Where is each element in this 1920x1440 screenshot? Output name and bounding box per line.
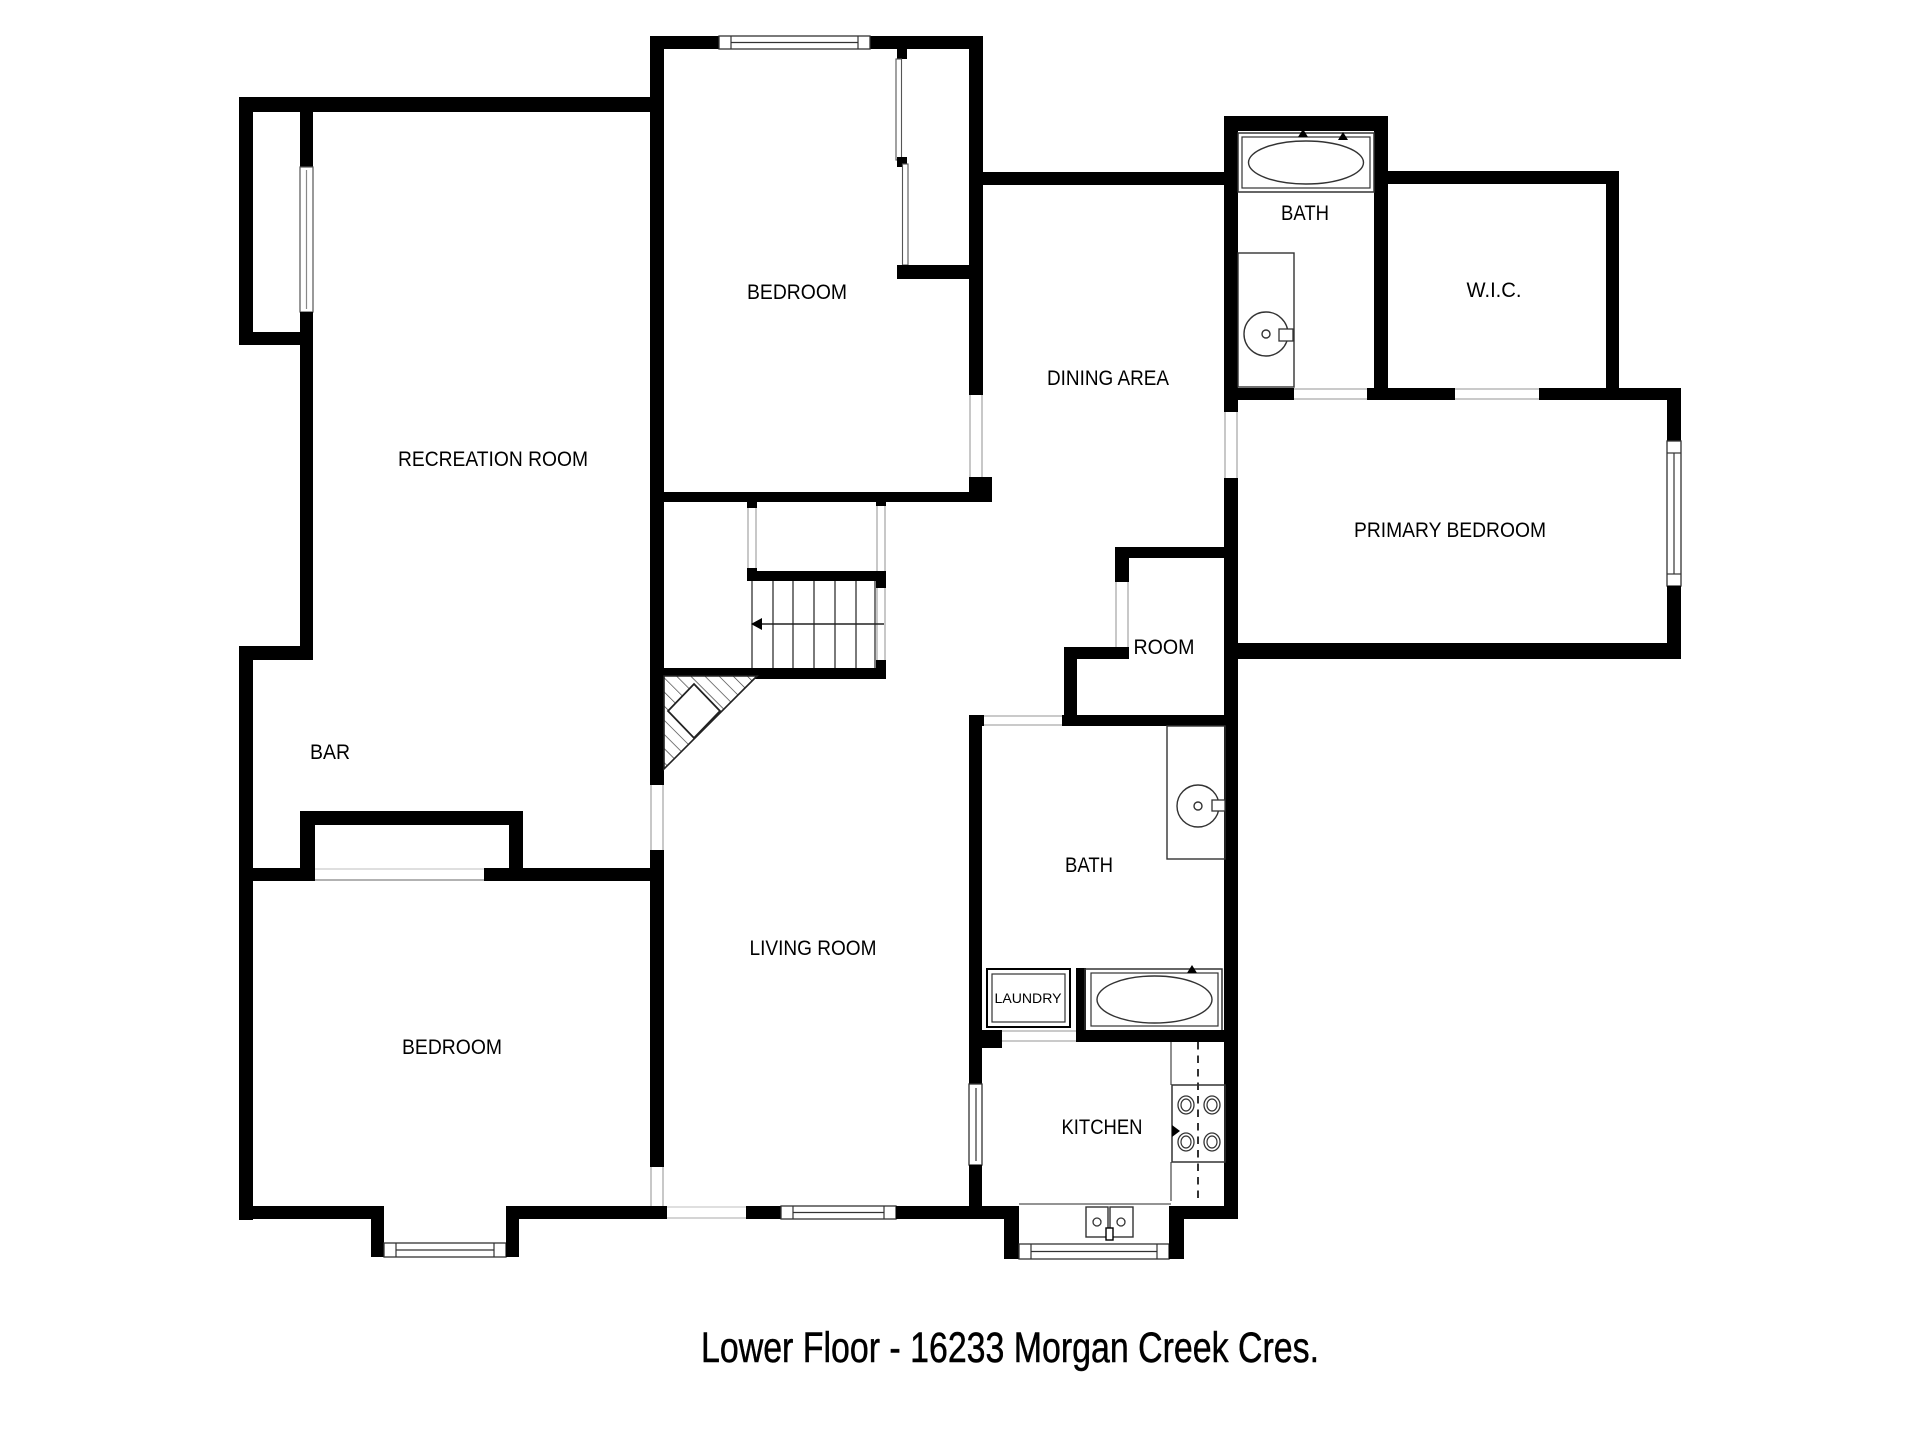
svg-text:BEDROOM: BEDROOM: [747, 281, 847, 304]
svg-text:ROOM: ROOM: [1134, 636, 1195, 659]
svg-text:Lower Floor - 16233 Morgan Cre: Lower Floor - 16233 Morgan Creek Cres.: [701, 1324, 1319, 1372]
svg-text:LAUNDRY: LAUNDRY: [995, 990, 1063, 1006]
svg-text:BEDROOM: BEDROOM: [402, 1036, 502, 1059]
svg-text:DINING AREA: DINING AREA: [1047, 367, 1169, 390]
svg-text:BAR: BAR: [310, 741, 350, 764]
svg-text:LIVING ROOM: LIVING ROOM: [750, 937, 877, 960]
svg-text:KITCHEN: KITCHEN: [1062, 1116, 1143, 1139]
svg-text:RECREATION ROOM: RECREATION ROOM: [398, 448, 588, 471]
svg-text:BATH: BATH: [1065, 854, 1113, 877]
svg-text:W.I.C.: W.I.C.: [1467, 279, 1522, 302]
svg-text:BATH: BATH: [1281, 202, 1329, 225]
svg-text:PRIMARY BEDROOM: PRIMARY BEDROOM: [1354, 519, 1546, 542]
